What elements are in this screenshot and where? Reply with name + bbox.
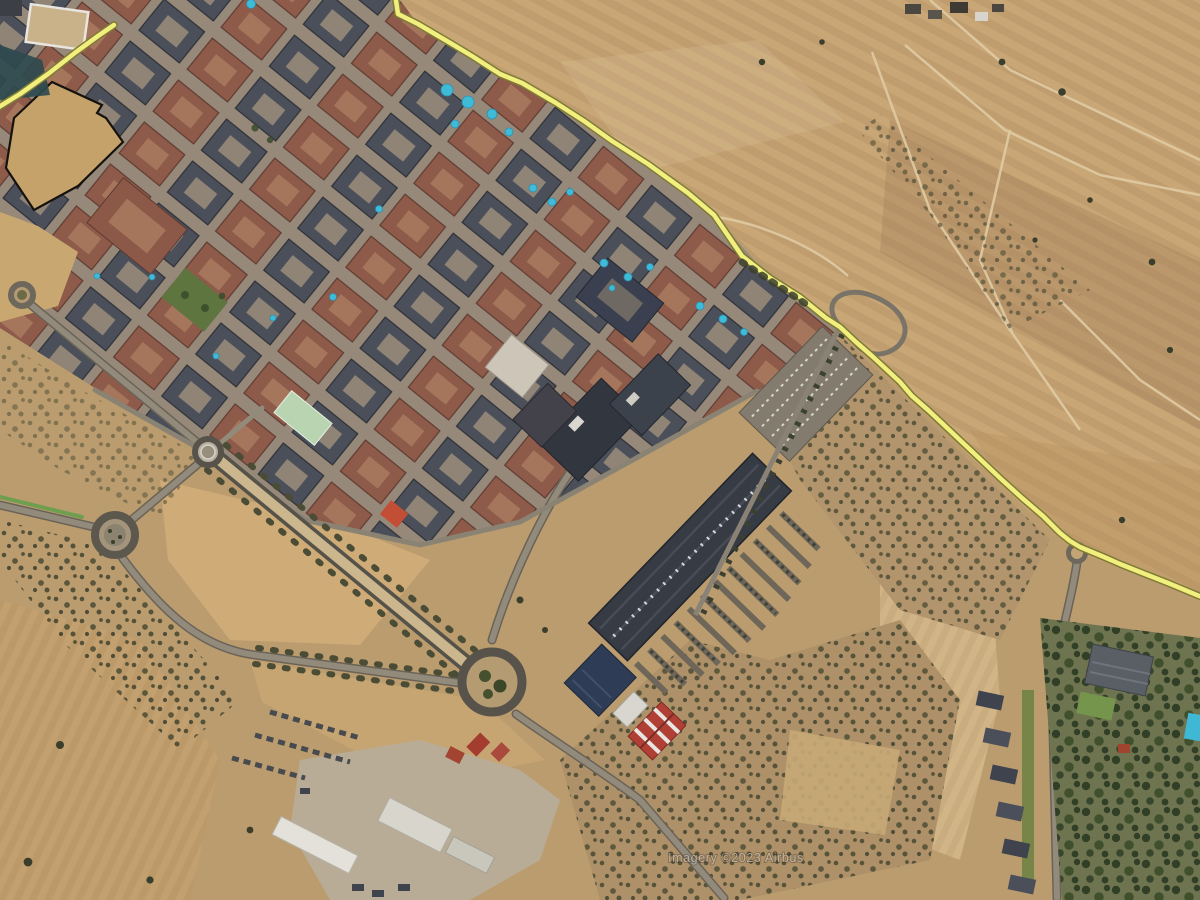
satellite-map-viewport: Imagery ©2023 Airbus [0,0,1200,900]
sports-field [26,4,89,50]
attribution-text: Imagery ©2023 Airbus [668,851,804,865]
satellite-imagery: Imagery ©2023 Airbus [0,0,1200,900]
roundabout-central [462,652,522,712]
roundabout-mid [195,439,221,465]
roundabout-west [11,284,33,306]
roundabout-southwest [95,515,135,555]
